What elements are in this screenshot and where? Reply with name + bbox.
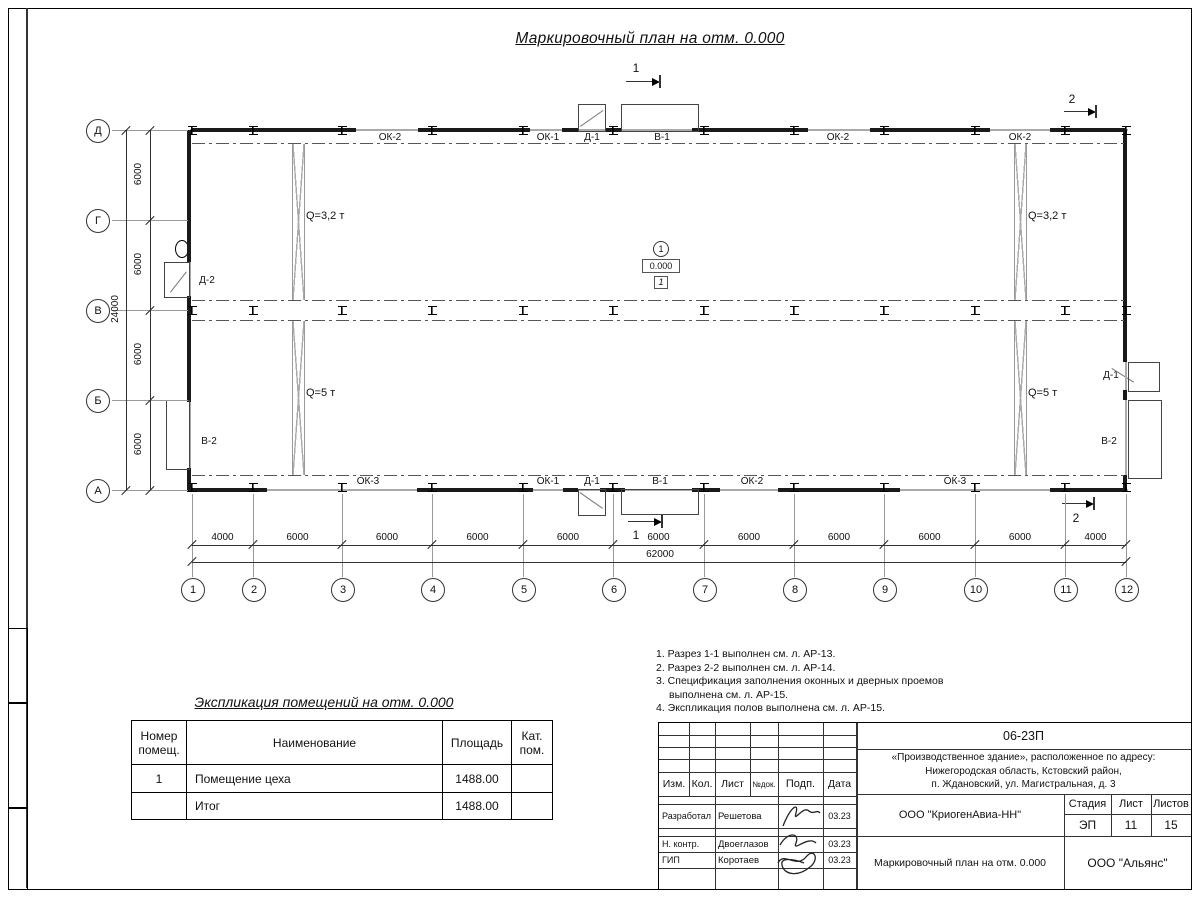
tb-address-line: п. Ждановский, ул. Магистральная, д. 3: [931, 778, 1115, 792]
tb-line: [659, 828, 856, 829]
note-item: 1. Разрез 1-1 выполнен см. л. АР-13.: [656, 648, 968, 662]
extension-line: [704, 494, 705, 577]
column-ibeam-icon: [1061, 483, 1070, 492]
grid-row-bubble: А: [86, 479, 110, 503]
opening-label-bottom: ОК-2: [732, 477, 772, 487]
dim-chain-line: [192, 545, 1126, 546]
extension-line: [1065, 494, 1066, 577]
opening-label-bottom: В-1: [640, 477, 680, 487]
column-ibeam-icon: [609, 483, 618, 492]
drawing-sheet: Маркировочный план на отм. 0.000 ОК-2 ОК…: [0, 0, 1200, 900]
entrance-porch: [164, 262, 190, 298]
grid-column-bubble: 4: [421, 578, 445, 602]
dim-value: 4000: [198, 533, 248, 543]
dim-value: 6000: [134, 244, 144, 284]
opening-label-left: В-2: [194, 437, 224, 447]
column-bracing: [1014, 321, 1027, 475]
tb-role: Н. контр.: [659, 836, 718, 852]
column-ibeam-icon: [338, 483, 347, 492]
tb-line: [659, 747, 856, 748]
column-ibeam-icon: [338, 306, 347, 315]
tb-plan-name: Маркировочный план на отм. 0.000: [856, 836, 1064, 889]
explication-title: Экспликация помещений на отм. 0.000: [130, 694, 518, 710]
opening-label-top: Д-1: [572, 133, 612, 143]
tb-name: Решетова: [715, 804, 781, 828]
column-ibeam-icon: [249, 126, 258, 135]
tb-doc-number: 06-23П: [856, 723, 1191, 749]
tb-header-data: Дата: [823, 772, 856, 796]
column-ibeam-icon: [1061, 126, 1070, 135]
wall-segment: [562, 128, 578, 132]
dim-total-value: 24000: [111, 287, 121, 331]
extension-line: [253, 494, 254, 577]
grid-column-bubble: 5: [512, 578, 536, 602]
opening-label-bottom: ОК-3: [935, 477, 975, 487]
column-ibeam-icon: [1122, 483, 1131, 492]
dim-value: 6000: [453, 533, 503, 543]
column-ibeam-icon: [971, 483, 980, 492]
tb-line: [659, 868, 856, 869]
column-ibeam-icon: [700, 126, 709, 135]
dim-total-line: [192, 562, 1126, 563]
tb-header-podp: Подп.: [778, 772, 823, 796]
section-mark-tick: [661, 515, 663, 528]
note-item: 2. Разрез 2-2 выполнен см. л. АР-14.: [656, 662, 968, 676]
opening-label-top: ОК-2: [370, 133, 410, 143]
entrance-porch: [621, 104, 699, 132]
grid-column-bubble: 8: [783, 578, 807, 602]
column-ibeam-icon: [338, 126, 347, 135]
section-mark-tick: [659, 75, 661, 88]
note-item: 3. Спецификация заполнения оконных и две…: [656, 675, 968, 702]
extension-line: [192, 494, 193, 577]
column-ibeam-icon: [188, 126, 197, 135]
cell-room-number: [132, 793, 187, 820]
tb-name: Коротаев: [715, 852, 781, 868]
grid-column-bubble: 10: [964, 578, 988, 602]
column-ibeam-icon: [880, 483, 889, 492]
section-mark-line: [1064, 111, 1090, 112]
column-ibeam-icon: [609, 306, 618, 315]
extension-line: [342, 494, 343, 577]
crane-rail-line: [192, 300, 1126, 301]
opening-label-top: ОК-1: [528, 133, 568, 143]
section-mark-line: [626, 81, 654, 82]
explication-header: Наименование: [187, 721, 443, 765]
column-ibeam-icon: [880, 126, 889, 135]
tb-header-izm: Изм.: [659, 772, 689, 796]
opening-label-bottom: Д-1: [572, 477, 612, 487]
dim-value: 6000: [634, 533, 684, 543]
extension-line: [884, 494, 885, 577]
wall-segment: [563, 488, 578, 492]
tb-date: 03.23: [823, 804, 856, 828]
tb-line: [659, 735, 856, 736]
dim-value: 6000: [995, 533, 1045, 543]
tb-header-kol: Кол.: [689, 772, 715, 796]
tb-sheets-value: 15: [1151, 814, 1191, 836]
dim-value: 6000: [273, 533, 323, 543]
column-ibeam-icon: [428, 306, 437, 315]
dim-value: 6000: [134, 154, 144, 194]
opening-label-right: Д-1: [1096, 371, 1126, 381]
column-ibeam-icon: [1122, 126, 1131, 135]
column-ibeam-icon: [790, 483, 799, 492]
extension-line: [794, 494, 795, 577]
dim-value: 6000: [543, 533, 593, 543]
cell-room-cat: [512, 765, 553, 793]
grid-column-bubble: 11: [1054, 578, 1078, 602]
tb-name: Двоеглазов: [715, 836, 781, 852]
grid-column-bubble: 1: [181, 578, 205, 602]
entrance-porch: [1128, 400, 1162, 479]
grid-row-bubble: Д: [86, 119, 110, 143]
column-ibeam-icon: [249, 306, 258, 315]
signature-scribble: [778, 800, 823, 832]
tb-organization: ООО "КриогенАвиа-НН": [856, 794, 1064, 836]
crane-capacity-label: Q=3,2 т: [1028, 211, 1090, 222]
tb-line: [659, 796, 856, 797]
grid-column-bubble: 6: [602, 578, 626, 602]
table-row: 1 Помещение цеха 1488.00: [132, 765, 553, 793]
cell-room-cat: [512, 793, 553, 820]
section-mark-line: [628, 521, 656, 522]
column-ibeam-icon: [971, 306, 980, 315]
cell-room-area: 1488.00: [443, 793, 512, 820]
tb-company: ООО "Альянс": [1064, 836, 1191, 889]
column-ibeam-icon: [519, 483, 528, 492]
explication-header: Площадь: [443, 721, 512, 765]
grid-column-bubble: 7: [693, 578, 717, 602]
column-ibeam-icon: [188, 306, 197, 315]
tb-address-line: Нижегородская область, Кстовский район,: [925, 765, 1122, 779]
tb-object-address: «Производственное здание», расположенное…: [856, 750, 1191, 793]
section-mark-tick: [1093, 497, 1095, 510]
dim-value: 4000: [1071, 533, 1121, 543]
column-ibeam-icon: [790, 126, 799, 135]
extension-line: [523, 494, 524, 577]
crane-rail-line: [192, 475, 1126, 476]
tb-sheets-header: Листов: [1151, 794, 1191, 814]
grid-row-bubble: Б: [86, 389, 110, 413]
column-ibeam-icon: [428, 483, 437, 492]
grid-row-bubble: Г: [86, 209, 110, 233]
tb-header-ndok: №док.: [750, 772, 778, 796]
grid-column-bubble: 9: [873, 578, 897, 602]
column-ibeam-icon: [790, 306, 799, 315]
column-ibeam-icon: [428, 126, 437, 135]
grid-column-bubble: 12: [1115, 578, 1139, 602]
crane-capacity-label: Q=5 т: [1028, 388, 1090, 399]
extension-line: [613, 494, 614, 577]
column-ibeam-icon: [700, 483, 709, 492]
opening-label-top: ОК-2: [1000, 133, 1040, 143]
section-mark-number: 1: [628, 62, 644, 74]
entrance-porch: [1128, 362, 1160, 392]
dim-chain-line: [150, 130, 151, 490]
entrance-porch: [621, 489, 699, 515]
column-ibeam-icon: [1122, 306, 1131, 315]
explication-header: Кат. пом.: [512, 721, 553, 765]
column-ibeam-icon: [188, 483, 197, 492]
column-ibeam-icon: [519, 126, 528, 135]
extension-line: [975, 494, 976, 577]
column-ibeam-icon: [609, 126, 618, 135]
tb-line: [659, 759, 856, 760]
tb-sheet-header: Лист: [1111, 794, 1151, 814]
extension-line: [432, 494, 433, 577]
crane-rail-line: [192, 320, 1126, 321]
dim-value: 6000: [814, 533, 864, 543]
wall-segment: [192, 128, 356, 132]
tb-date: 03.23: [823, 836, 856, 852]
crane-rail-line: [192, 143, 1126, 144]
grid-row-bubble: В: [86, 299, 110, 323]
crane-capacity-label: Q=5 т: [306, 388, 368, 399]
section-mark-number: 2: [1068, 512, 1084, 524]
opening-label-top: ОК-2: [818, 133, 858, 143]
title-block: Изм. Кол. Лист №док. Подп. Дата Разработ…: [658, 722, 1192, 890]
grid-column-bubble: 3: [331, 578, 355, 602]
cell-room-name: Итог: [187, 793, 443, 820]
wall-segment: [1123, 390, 1127, 400]
tb-header-list: Лист: [715, 772, 750, 796]
cell-room-name: Помещение цеха: [187, 765, 443, 793]
entrance-porch: [166, 400, 190, 470]
cell-room-area: 1488.00: [443, 765, 512, 793]
wall-segment: [187, 130, 191, 262]
tb-sheet-value: 11: [1111, 814, 1151, 836]
tb-role: Разработал: [659, 804, 718, 828]
section-mark-number: 2: [1064, 93, 1080, 105]
entrance-porch: [578, 104, 606, 132]
column-ibeam-icon: [249, 483, 258, 492]
tb-address-line: «Производственное здание», расположенное…: [892, 751, 1156, 765]
dim-value: 6000: [362, 533, 412, 543]
room-number-bubble: 1: [653, 241, 669, 257]
opening-label-bottom: ОК-1: [528, 477, 568, 487]
column-bracing: [292, 321, 305, 475]
wall-segment: [1123, 130, 1127, 362]
crane-capacity-label: Q=3,2 т: [306, 211, 368, 222]
notes-list: 1. Разрез 1-1 выполнен см. л. АР-13. 2. …: [656, 648, 968, 716]
tb-date: 03.23: [823, 852, 856, 868]
grid-column-bubble: 2: [242, 578, 266, 602]
table-row: Итог 1488.00: [132, 793, 553, 820]
opening-label-right: В-2: [1094, 437, 1124, 447]
tb-role: ГИП: [659, 852, 718, 868]
column-ibeam-icon: [519, 306, 528, 315]
column-bracing: [1014, 144, 1027, 300]
column-ibeam-icon: [1061, 306, 1070, 315]
dim-value: 6000: [724, 533, 774, 543]
dim-total-value: 62000: [630, 550, 690, 560]
entrance-porch: [578, 489, 606, 516]
opening-label-left: Д-2: [192, 276, 222, 286]
signature-scribble: [774, 829, 826, 881]
tb-stage-header: Стадия: [1064, 794, 1111, 814]
column-ibeam-icon: [880, 306, 889, 315]
tb-stage-value: ЭП: [1064, 814, 1111, 836]
floor-type-mark: 1: [654, 276, 668, 289]
dim-total-line: [126, 130, 127, 490]
column-ibeam-icon: [971, 126, 980, 135]
column-bracing: [292, 144, 305, 300]
note-item: 4. Экспликация полов выполнена см. л. АР…: [656, 702, 968, 716]
dim-value: 6000: [134, 424, 144, 464]
opening-label-bottom: ОК-3: [348, 477, 388, 487]
cell-room-number: 1: [132, 765, 187, 793]
explication-table: Номер помещ. Наименование Площадь Кат. п…: [131, 720, 553, 820]
opening-label-top: В-1: [642, 133, 682, 143]
explication-header: Номер помещ.: [132, 721, 187, 765]
section-mark-tick: [1095, 105, 1097, 118]
dim-value: 6000: [134, 334, 144, 374]
column-ibeam-icon: [700, 306, 709, 315]
extension-line: [1126, 494, 1127, 577]
elevation-mark: 0.000: [642, 259, 680, 273]
dim-value: 6000: [905, 533, 955, 543]
